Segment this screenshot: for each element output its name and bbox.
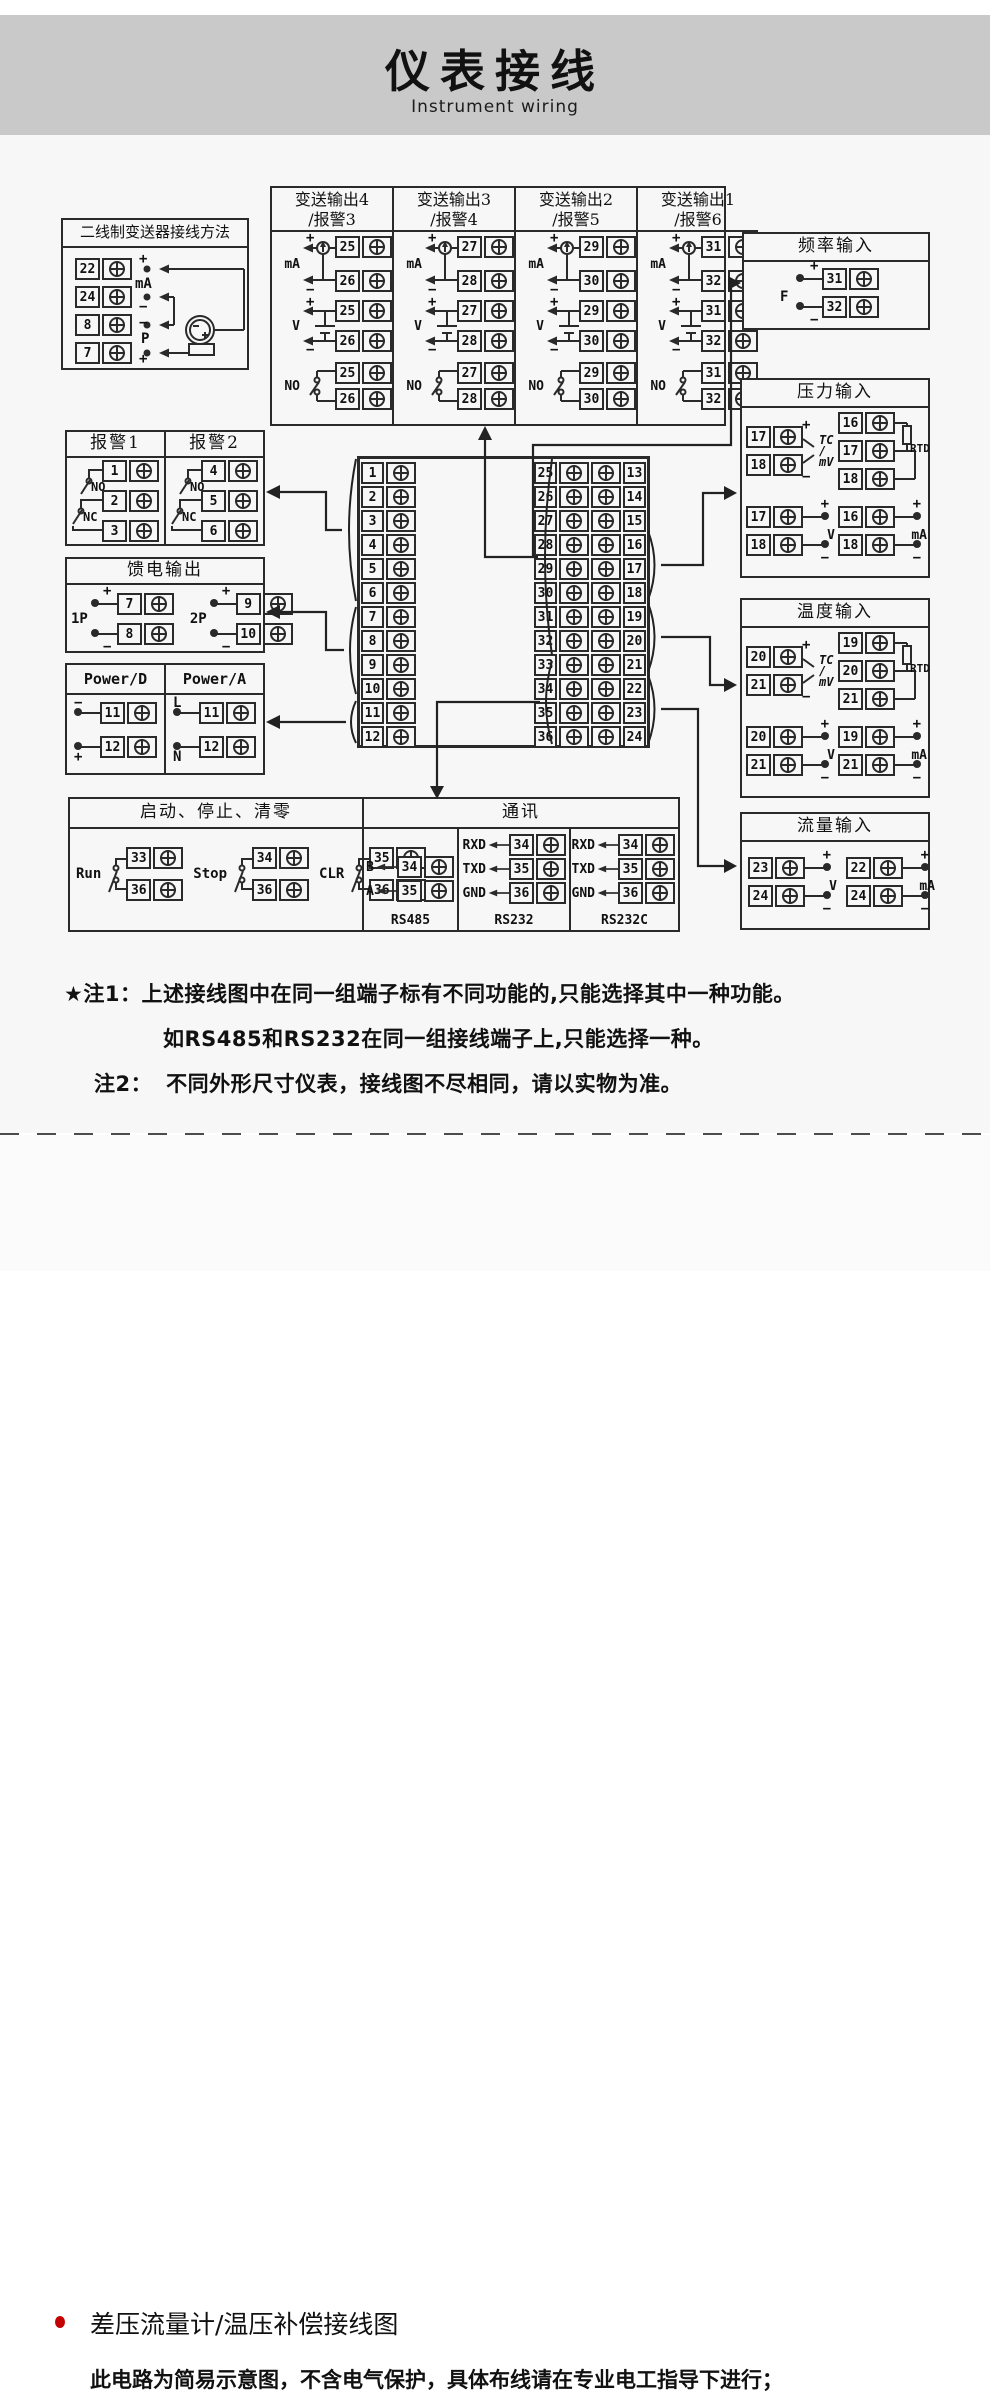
comm-row: GND36: [571, 883, 678, 903]
terminal-number: 20: [838, 660, 863, 682]
page-subtitle: Instrument wiring: [0, 97, 990, 117]
screw-terminal-icon: [144, 593, 174, 615]
group-label: Stop: [193, 866, 227, 882]
sign: +: [139, 252, 147, 266]
terminal-number: 32: [701, 388, 726, 410]
screw-terminal-icon: [484, 236, 514, 258]
screw-terminal-icon: [362, 330, 392, 352]
screw-terminal-icon: [728, 330, 758, 352]
comm-section: 通讯 B34A35 RS485 RXD34TXD35GND36 RS232: [364, 799, 678, 930]
terminal-row: 1: [361, 462, 416, 484]
frequency-title: 频率输入: [744, 234, 928, 262]
terminal-row: 2614: [534, 486, 646, 508]
alarm-column: 报警1 NO NC 1 2 3: [67, 432, 166, 544]
screw-terminal-icon: [386, 606, 416, 628]
terminal-row: 3018: [534, 582, 646, 604]
screw-terminal-icon: [773, 754, 803, 776]
screw-terminal-icon: [484, 362, 514, 384]
terminal-number: 35: [534, 702, 557, 724]
ma-output-wiring: mA + − 27 28: [397, 236, 514, 292]
terminal-number: 14: [623, 486, 646, 508]
terminal-row: 7: [75, 342, 132, 364]
terminal-number: 9: [361, 654, 384, 676]
v-label: V: [641, 319, 666, 334]
signal-label: RXD: [572, 838, 595, 853]
pressure-rtd-group: 16 17 18 RTD: [838, 412, 895, 490]
terminal-number: 31: [534, 606, 557, 628]
terminal-number: 30: [579, 330, 604, 352]
frequency-input-box: 频率输入 F + − 31 32: [742, 232, 930, 330]
minus-sign: −: [921, 902, 929, 916]
plus-sign: +: [672, 295, 680, 309]
temp-rtd-group: 19 20 21 RTD: [838, 632, 895, 710]
column-title: 变送输出3/报警4: [394, 188, 514, 232]
screw-terminal-icon: [129, 520, 159, 542]
screw-terminal-icon: [279, 847, 309, 869]
terminal-number: 25: [335, 362, 360, 384]
screw-terminal-icon: [591, 534, 621, 556]
tc-mv-label: TC/mV: [819, 435, 833, 468]
screw-terminal-icon: [559, 582, 589, 604]
two-wire-terminals: 222487: [75, 258, 132, 364]
pressure-title: 压力输入: [742, 380, 928, 408]
screw-terminal-icon: [773, 454, 803, 476]
screw-terminal-icon: [279, 879, 309, 901]
wire-lead: [74, 736, 100, 758]
screw-terminal-icon: [591, 582, 621, 604]
screw-terminal-icon: [606, 362, 636, 384]
terminal-row: 9: [361, 654, 416, 676]
switch-icon: [104, 848, 126, 900]
tc-mv-label: TC/mV: [819, 655, 833, 688]
terminal-number: 32: [822, 296, 847, 318]
screw-terminal-icon: [129, 460, 159, 482]
plus-sign: +: [550, 295, 558, 309]
screw-terminal-icon: [645, 882, 675, 904]
power-column: Power/D − + 11 12: [67, 665, 166, 773]
ma-label: mA: [519, 257, 544, 272]
plus-sign: +: [428, 231, 436, 245]
terminal-number: 18: [623, 582, 646, 604]
terminal-number: 34: [509, 834, 534, 856]
screw-terminal-icon: [102, 286, 132, 308]
terminal-row: 3321: [534, 654, 646, 676]
terminal-number: 18: [746, 534, 771, 556]
screw-terminal-icon: [773, 674, 803, 696]
terminal-number: 24: [75, 286, 100, 308]
screw-terminal-icon: [226, 736, 256, 758]
note-1-line-1: ★注1：上述接线图中在同一组端子标有不同功能的,只能选择其中一种功能。: [64, 978, 795, 1008]
screw-terminal-icon: [228, 520, 258, 542]
terminal-number: 5: [201, 490, 226, 512]
v-output-wiring: V + − 27 28: [397, 300, 514, 352]
plus-sign: +: [913, 497, 921, 511]
group-label: CLR: [319, 866, 344, 882]
minus-sign: −: [913, 771, 921, 785]
screw-terminal-icon: [606, 300, 636, 322]
minus-sign: −: [821, 551, 829, 565]
terminal-number: 22: [846, 857, 871, 879]
arrow-left-icon: [487, 864, 509, 874]
temp-v-group: 20 21 + − V: [746, 726, 829, 776]
terminal-number: 34: [397, 856, 422, 878]
terminal-number: 36: [126, 879, 151, 901]
frequency-wiring: F + − 31 32: [796, 268, 879, 318]
ma-label: mA: [135, 277, 152, 291]
ma-label: mA: [911, 748, 927, 763]
screw-terminal-icon: [386, 486, 416, 508]
screw-terminal-icon: [591, 654, 621, 676]
screw-terminal-icon: [386, 726, 416, 748]
minus-sign: −: [306, 343, 314, 357]
relay-contact-icon: [423, 362, 457, 410]
terminal-row: 6: [361, 582, 416, 604]
terminal-number: 35: [509, 858, 534, 880]
terminal-row: 24: [75, 286, 132, 308]
two-wire-title: 二线制变送器接线方法: [63, 220, 247, 248]
ma-output-wiring: mA + − 31 32: [641, 236, 758, 292]
transmit-output-column: 变送输出4/报警3 mA + − 25 26 V + −: [272, 188, 394, 424]
terminal-number: 20: [746, 646, 771, 668]
v-output-wiring: V + − 29 30: [519, 300, 636, 352]
terminal-number: 5: [361, 558, 384, 580]
no-label: NO: [397, 379, 422, 394]
terminal-number: 34: [252, 847, 277, 869]
rtd-label: RTD: [910, 442, 930, 455]
feed-group: 2P 9 10 + −: [190, 593, 293, 645]
terminal-number: 4: [201, 460, 226, 482]
group-label: Run: [76, 866, 101, 882]
screw-terminal-icon: [606, 330, 636, 352]
terminal-number: 36: [618, 882, 643, 904]
temperature-input-box: 温度输入 20 21 TC/mV + − 19 20 21 RTD 20 21: [740, 598, 930, 798]
screw-terminal-icon: [102, 314, 132, 336]
screw-terminal-icon: [559, 486, 589, 508]
terminal-number: 12: [361, 726, 384, 748]
footer-section-title: 差压流量计/温压补偿接线图: [90, 2305, 398, 2341]
page-title: 仪表接线: [0, 15, 990, 100]
terminal-number: 28: [457, 330, 482, 352]
terminal-row: 12: [361, 726, 416, 748]
arrow-left-icon: [487, 888, 509, 898]
terminal-number: 23: [748, 857, 773, 879]
screw-terminal-icon: [591, 462, 621, 484]
ma-label: mA: [911, 528, 927, 543]
terminal-number: 16: [623, 534, 646, 556]
rs232-section: RXD34TXD35GND36 RS232: [459, 829, 571, 930]
terminal-number: 8: [75, 314, 100, 336]
arrow-left-icon: [596, 864, 618, 874]
v-label: V: [827, 528, 835, 543]
pressure-v-group: 17 18 + − V: [746, 506, 829, 556]
screw-terminal-icon: [386, 582, 416, 604]
screw-terminal-icon: [773, 534, 803, 556]
terminal-number: 21: [838, 754, 863, 776]
sign: −: [139, 300, 147, 314]
v-label: V: [275, 319, 300, 334]
screw-terminal-icon: [865, 660, 895, 682]
terminal-number: 11: [100, 702, 125, 724]
terminal-row: 3624: [534, 726, 646, 748]
terminal-number: 19: [623, 606, 646, 628]
feed-group: 1P 7 8 + −: [71, 593, 174, 645]
screw-terminal-icon: [773, 506, 803, 528]
screw-terminal-icon: [559, 558, 589, 580]
flow-ma-group: 22 24 + − mA: [846, 857, 929, 907]
terminal-number: 35: [618, 858, 643, 880]
terminal-row: 22: [75, 258, 132, 280]
terminal-number: 32: [701, 270, 726, 292]
comm-row: GND36: [459, 883, 569, 903]
terminal-number: 11: [199, 702, 224, 724]
relay-output-wiring: NO 27 28: [397, 362, 514, 410]
screw-terminal-icon: [362, 300, 392, 322]
screw-terminal-icon: [228, 490, 258, 512]
terminal-number: 6: [361, 582, 384, 604]
terminal-number: 19: [838, 632, 863, 654]
terminal-number: 4: [361, 534, 384, 556]
terminal-number: 3: [361, 510, 384, 532]
alarm-title: 报警1: [67, 432, 164, 458]
two-wire-transmitter-box: 二线制变送器接线方法 222487 + mA − − P +: [61, 218, 249, 370]
right-terminal-column: 2513261427152816291730183119322033213422…: [534, 462, 646, 748]
screw-terminal-icon: [865, 440, 895, 462]
terminal-number: 28: [457, 270, 482, 292]
sign: +: [139, 352, 147, 366]
screw-terminal-icon: [102, 258, 132, 280]
terminal-row: 3119: [534, 606, 646, 628]
screw-terminal-icon: [591, 558, 621, 580]
terminal-number: 20: [623, 630, 646, 652]
minus-sign: −: [821, 771, 829, 785]
terminal-number: 8: [361, 630, 384, 652]
terminal-number: 36: [509, 882, 534, 904]
screw-terminal-icon: [559, 606, 589, 628]
screw-terminal-icon: [849, 296, 879, 318]
screw-terminal-icon: [362, 362, 392, 384]
terminal-number: 36: [252, 879, 277, 901]
screw-terminal-icon: [591, 606, 621, 628]
screw-terminal-icon: [559, 630, 589, 652]
comm-row: A35: [364, 881, 457, 901]
terminal-number: 34: [618, 834, 643, 856]
screw-terminal-icon: [226, 702, 256, 724]
pressure-tc-group: 17 18 TC/mV + −: [746, 426, 833, 476]
terminal-number: 26: [335, 330, 360, 352]
nc-label: NC: [182, 510, 196, 524]
terminal-number: 26: [335, 270, 360, 292]
signal-label: A: [366, 884, 374, 899]
control-title: 启动、停止、清零: [70, 799, 362, 829]
v-label: V: [519, 319, 544, 334]
screw-terminal-icon: [362, 388, 392, 410]
relay-contact-icon: [667, 362, 701, 410]
screw-terminal-icon: [559, 702, 589, 724]
control-section: 启动、停止、清零 Run 33 36 Stop 34 36: [70, 799, 364, 930]
terminal-number: 22: [75, 258, 100, 280]
flow-v-group: 23 24 + − V: [748, 857, 831, 907]
terminal-number: 16: [838, 412, 863, 434]
terminal-row: 8: [361, 630, 416, 652]
terminal-row: 5: [361, 558, 416, 580]
group-label: 2P: [190, 611, 207, 627]
column-title: 变送输出2/报警5: [516, 188, 636, 232]
transmit-output-column: 变送输出2/报警5 mA + − 29 30 V + −: [516, 188, 638, 424]
screw-terminal-icon: [873, 857, 903, 879]
terminal-number: 29: [579, 300, 604, 322]
plus-sign: +: [802, 638, 810, 652]
terminal-number: 21: [838, 688, 863, 710]
plus-sign: +: [913, 717, 921, 731]
feed-output-box: 馈电输出 1P 7 8 + − 2P 9 10 + −: [65, 557, 265, 653]
control-group: Run 33 36: [76, 847, 183, 901]
screw-terminal-icon: [591, 678, 621, 700]
terminal-number: 29: [579, 362, 604, 384]
screw-terminal-icon: [263, 593, 293, 615]
f-label: F: [780, 290, 788, 304]
rtd-label: RTD: [910, 662, 930, 675]
terminal-number: 20: [746, 726, 771, 748]
terminal-row: 2513: [534, 462, 646, 484]
wire-lead: [796, 268, 822, 290]
screw-terminal-icon: [386, 654, 416, 676]
screw-terminal-icon: [424, 856, 454, 878]
terminal-number: 27: [457, 300, 482, 322]
red-bullet-icon: [55, 2316, 65, 2328]
alarm-column: 报警2 NO NC 4 5 6: [166, 432, 263, 544]
terminal-row: 8: [75, 314, 132, 336]
ma-output-wiring: mA + − 25 26: [275, 236, 392, 292]
screw-terminal-icon: [362, 236, 392, 258]
terminal-number: 12: [100, 736, 125, 758]
terminal-number: 16: [838, 506, 863, 528]
rs232c-label: RS232C: [571, 913, 678, 928]
terminal-number: 25: [335, 300, 360, 322]
terminal-number: 21: [746, 754, 771, 776]
terminal-number: 24: [846, 885, 871, 907]
transmit-output-box: 变送输出4/报警3 mA + − 25 26 V + −: [270, 186, 726, 426]
plus-sign: +: [306, 231, 314, 245]
screw-terminal-icon: [386, 678, 416, 700]
terminal-number: 8: [117, 623, 142, 645]
no-label: NO: [275, 379, 300, 394]
screw-terminal-icon: [559, 726, 589, 748]
screw-terminal-icon: [129, 490, 159, 512]
minus-sign: −: [802, 690, 810, 704]
plus-sign: +: [823, 848, 831, 862]
rs485-label: RS485: [364, 913, 457, 928]
terminal-number: 27: [457, 236, 482, 258]
flow-input-box: 流量输入 23 24 + − V 22 24 + − mA: [740, 812, 930, 930]
minus-sign: −: [222, 640, 230, 654]
instrument-rear-terminal-block: 123456789101112 251326142715281629173018…: [357, 456, 650, 748]
arrow-left-icon: [375, 862, 397, 872]
screw-terminal-icon: [606, 270, 636, 292]
screw-terminal-icon: [865, 726, 895, 748]
minus-sign: −: [428, 343, 436, 357]
column-title: 变送输出1/报警6: [638, 188, 758, 232]
terminal-row: 3: [361, 510, 416, 532]
screw-terminal-icon: [591, 486, 621, 508]
note-2: 注2：不同外形尺寸仪表，接线图不尽相同，请以实物为准。: [94, 1068, 682, 1098]
diagram-area: 仪表接线 Instrument wiring 二线制变送器接线方法 222487…: [0, 15, 990, 1133]
comm-row: B34: [364, 857, 457, 877]
screw-terminal-icon: [873, 885, 903, 907]
plus-sign: +: [821, 497, 829, 511]
wire-lead: [74, 702, 100, 724]
screw-terminal-icon: [559, 534, 589, 556]
terminal-row: 10: [361, 678, 416, 700]
terminal-number: 18: [838, 468, 863, 490]
control-group: Stop 34 36: [193, 847, 309, 901]
no-label: NO: [641, 379, 666, 394]
terminal-number: 21: [746, 674, 771, 696]
screw-terminal-icon: [559, 462, 589, 484]
terminal-number: 27: [457, 362, 482, 384]
relay-output-wiring: NO 29 30: [519, 362, 636, 410]
screw-terminal-icon: [591, 726, 621, 748]
plus-sign: +: [103, 584, 111, 598]
screw-terminal-icon: [865, 688, 895, 710]
arrow-left-icon: [487, 840, 509, 850]
screw-terminal-icon: [865, 632, 895, 654]
terminal-number: 11: [361, 702, 384, 724]
power-title: Power/A: [166, 665, 263, 695]
terminal-number: 7: [117, 593, 142, 615]
minus-sign: −: [802, 470, 810, 484]
relay-output-wiring: NO 25 26: [275, 362, 392, 410]
screw-terminal-icon: [559, 510, 589, 532]
screw-terminal-icon: [362, 270, 392, 292]
power-wiring: − + 11 12: [74, 702, 157, 758]
transmit-output-column: 变送输出3/报警4 mA + − 27 28 V + −: [394, 188, 516, 424]
switch-icon: [230, 848, 252, 900]
screw-terminal-icon: [536, 834, 566, 856]
signal-label: B: [366, 860, 374, 875]
alarm-box: 报警1 NO NC 1 2 3 报警2 NO NC: [65, 430, 265, 546]
screw-terminal-icon: [386, 534, 416, 556]
terminal-row: 3220: [534, 630, 646, 652]
feed-title: 馈电输出: [67, 559, 263, 585]
terminal-number: 26: [534, 486, 557, 508]
screw-terminal-icon: [606, 236, 636, 258]
terminal-number: 30: [579, 270, 604, 292]
column-title: 变送输出4/报警3: [272, 188, 392, 232]
screw-terminal-icon: [591, 702, 621, 724]
terminal-number: 13: [623, 462, 646, 484]
comm-row: TXD35: [571, 859, 678, 879]
minus-sign: −: [913, 551, 921, 565]
ma-label: mA: [397, 257, 422, 272]
terminal-number: 30: [534, 582, 557, 604]
relay-contact-icon: [545, 362, 579, 410]
terminal-number: 3: [102, 520, 127, 542]
screw-terminal-icon: [849, 268, 879, 290]
power-column: Power/A L N 11 12: [166, 665, 263, 773]
flow-title: 流量输入: [742, 814, 928, 842]
screw-terminal-icon: [775, 885, 805, 907]
terminal-number: 27: [534, 510, 557, 532]
temp-ma-group: 19 21 + − mA: [838, 726, 921, 776]
screw-terminal-icon: [536, 858, 566, 880]
screw-terminal-icon: [773, 426, 803, 448]
power-wiring: L N 11 12: [173, 702, 256, 758]
signal-label: GND: [463, 886, 486, 901]
arrow-left-icon: [596, 888, 618, 898]
rs232c-section: RXD34TXD35GND36 RS232C: [571, 829, 678, 930]
note-1-line-2: 如RS485和RS232在同一组接线端子上,只能选择一种。: [163, 1023, 714, 1053]
screw-terminal-icon: [775, 857, 805, 879]
